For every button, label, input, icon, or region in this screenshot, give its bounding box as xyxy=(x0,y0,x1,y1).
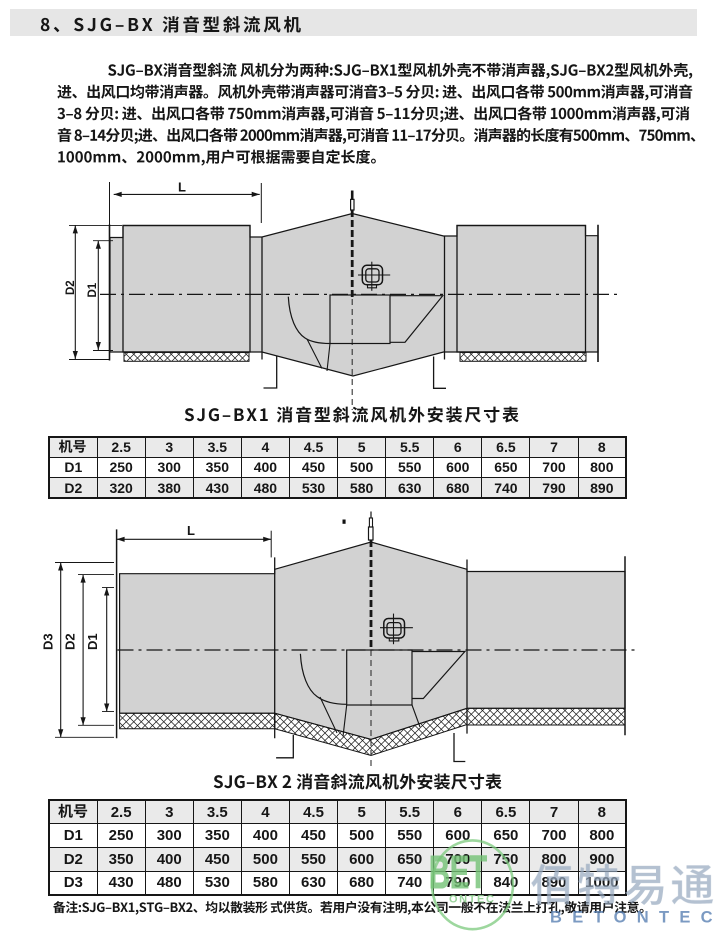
svg-text:ONTEC: ONTEC xyxy=(449,894,496,906)
svg-text:BET: BET xyxy=(429,847,487,898)
svg-text:BETONTEC: BETONTEC xyxy=(550,909,720,927)
